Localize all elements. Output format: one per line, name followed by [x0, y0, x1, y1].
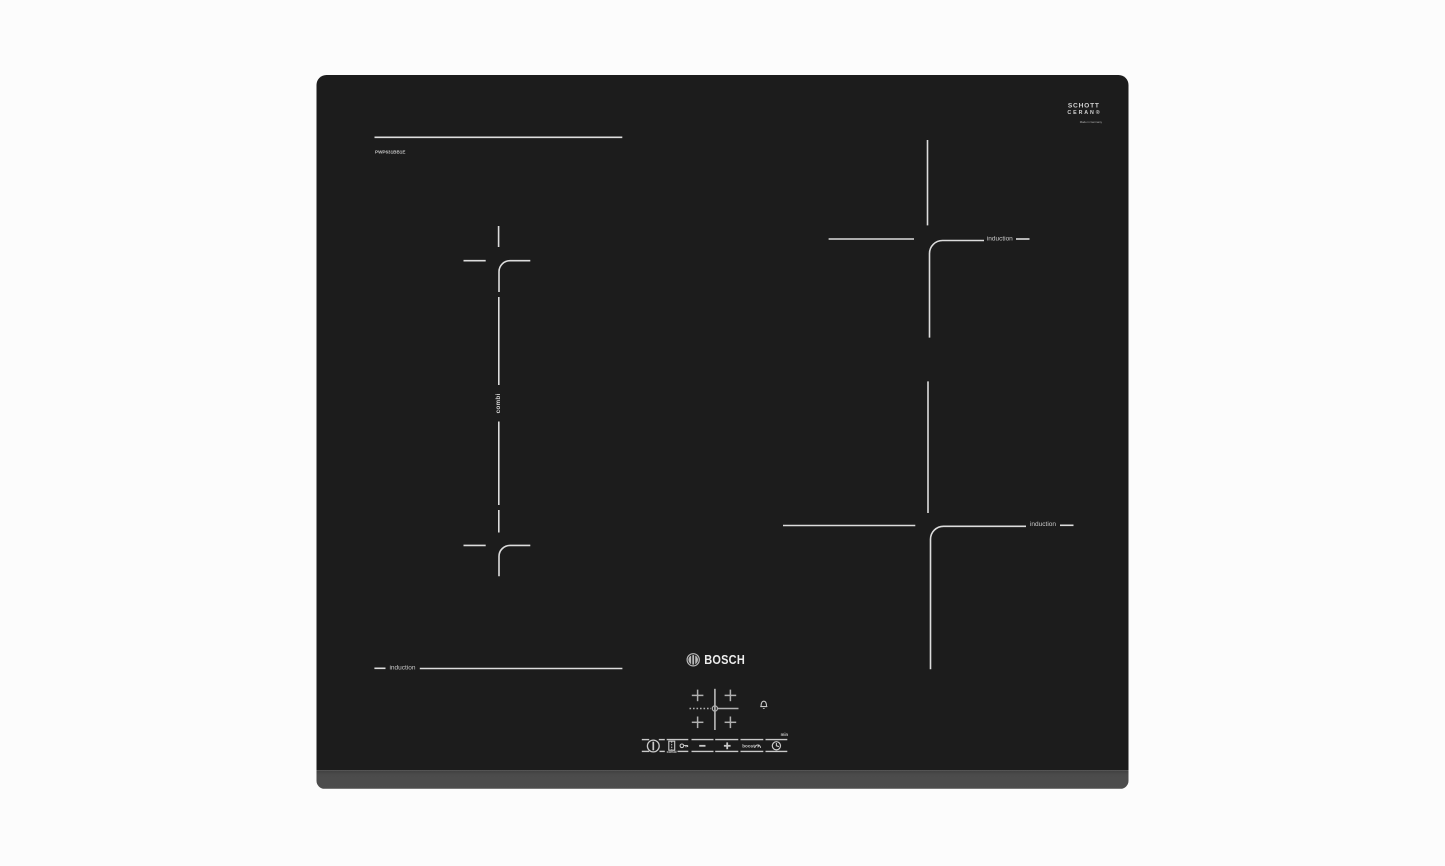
svg-text:boost: boost: [742, 744, 755, 749]
svg-text:induction: induction: [1030, 521, 1056, 528]
svg-text:induction: induction: [987, 236, 1013, 243]
svg-text:min: min: [781, 732, 789, 737]
svg-text:BOSCH: BOSCH: [704, 652, 745, 667]
svg-text:CERAN®: CERAN®: [1067, 109, 1101, 116]
svg-text:induction: induction: [389, 664, 415, 671]
svg-text:Made in Germany: Made in Germany: [1080, 120, 1103, 124]
svg-text:combi: combi: [495, 394, 502, 414]
svg-text:SCHOTT: SCHOTT: [1068, 102, 1100, 109]
svg-text:PWP631BB1E: PWP631BB1E: [375, 149, 405, 154]
svg-text:combi: combi: [667, 750, 677, 754]
